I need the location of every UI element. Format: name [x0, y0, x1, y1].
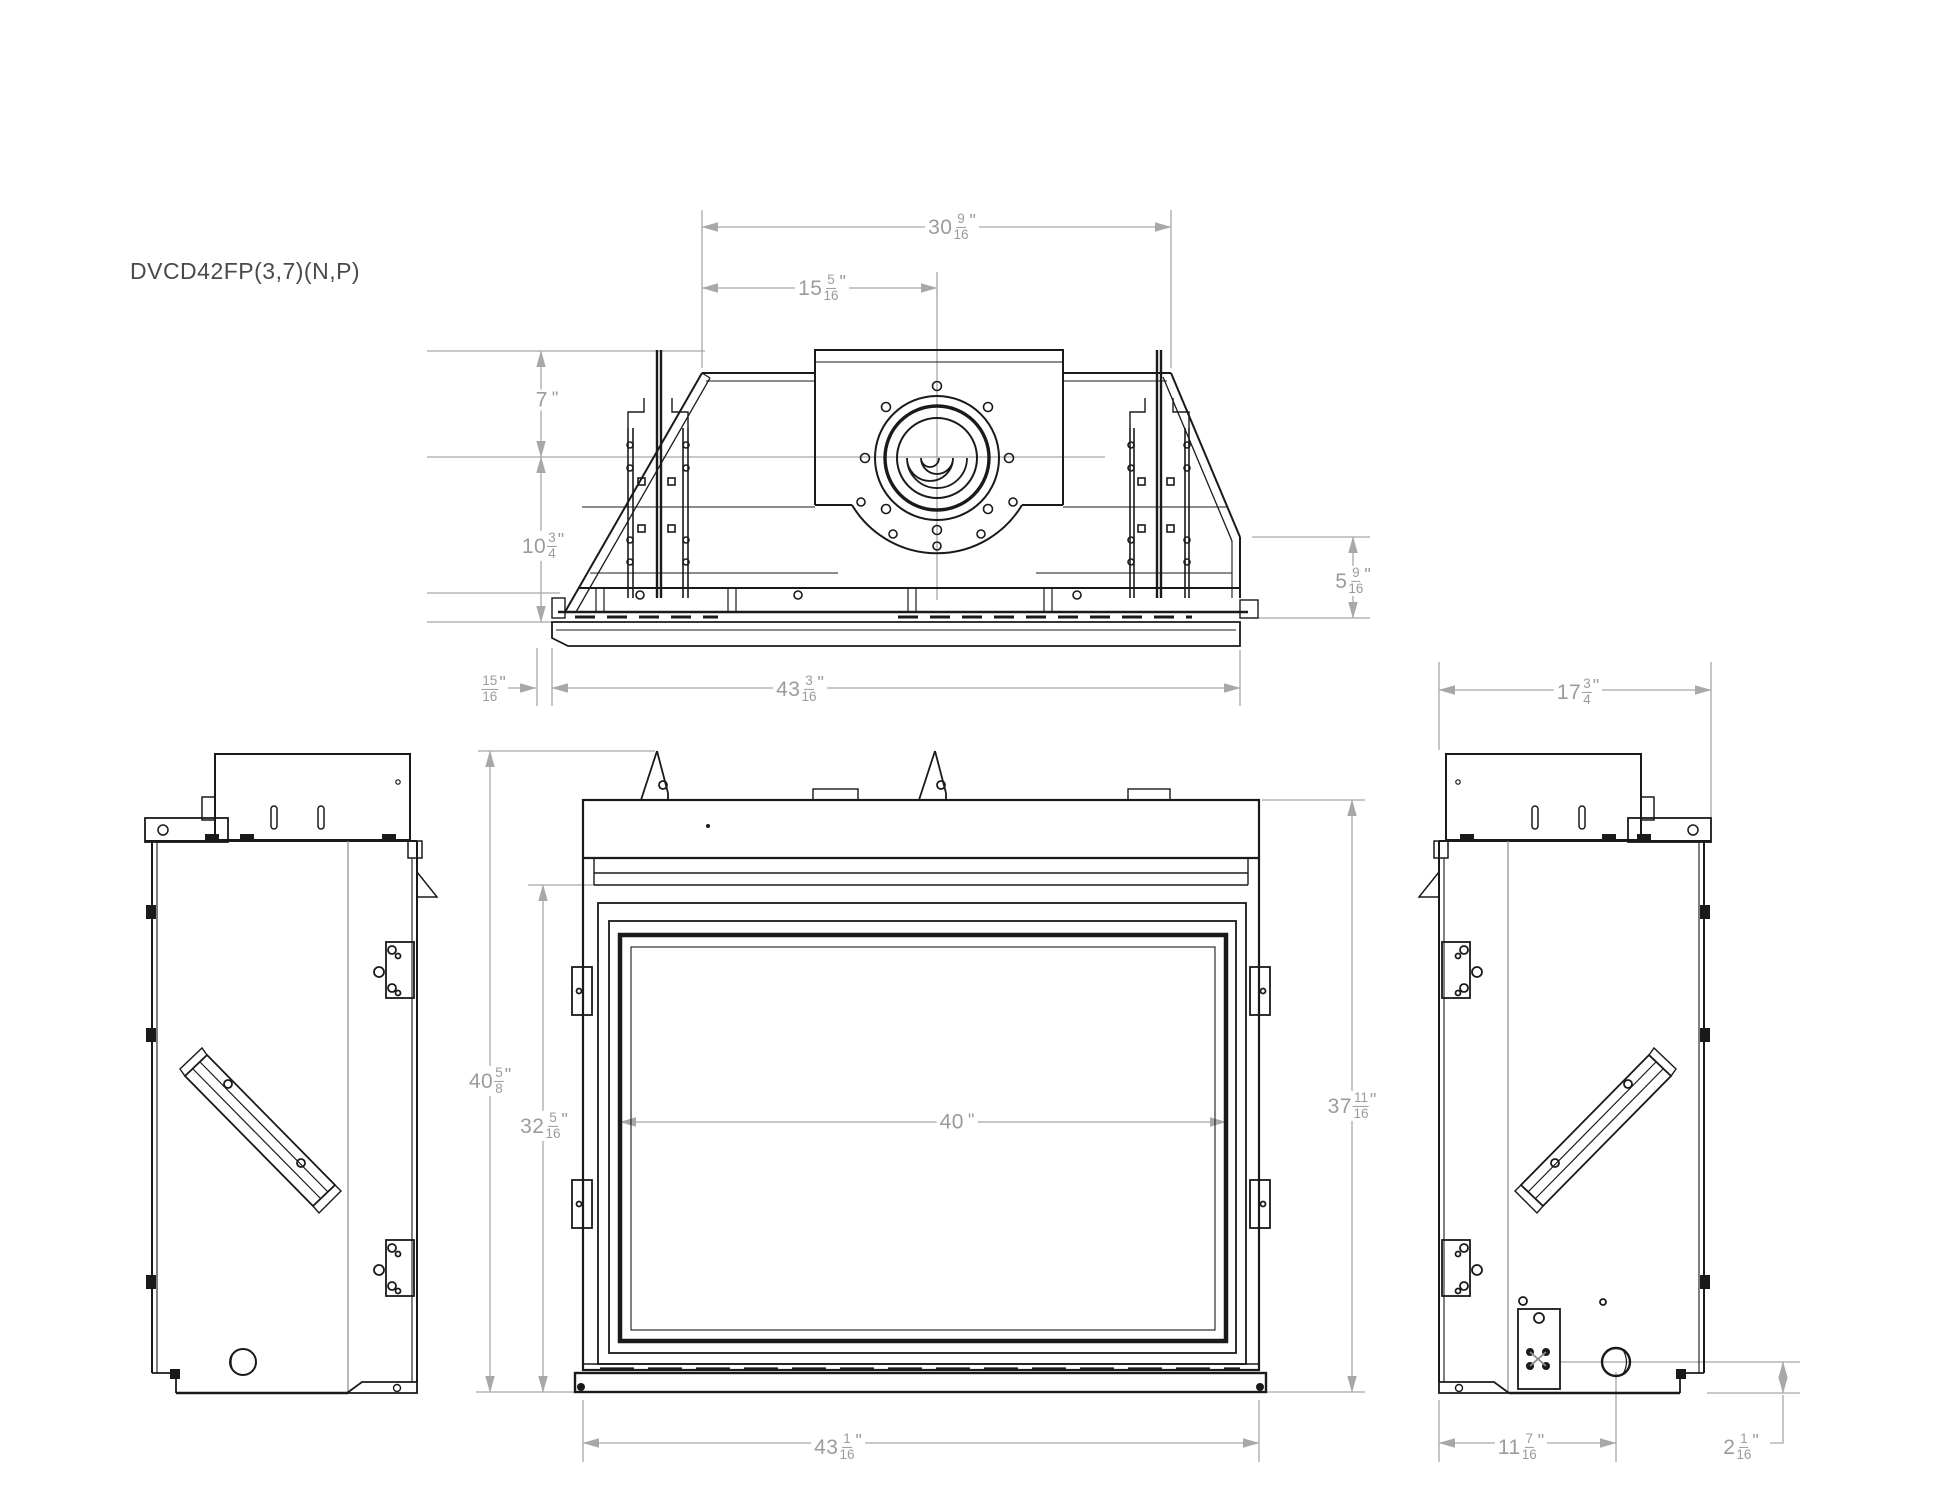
dim-top-back-width: 30916"	[925, 212, 979, 242]
dim-top-front-width: 43316"	[773, 674, 827, 704]
slot	[271, 806, 277, 829]
top-tab	[1128, 789, 1170, 800]
vent-shroud	[815, 350, 1063, 505]
right-bevel-panel	[1163, 373, 1258, 618]
standoff-box	[215, 754, 410, 840]
top-view	[552, 350, 1258, 646]
header-louver	[583, 824, 1259, 885]
dim-opening-height: 32516"	[517, 1111, 571, 1141]
rear-bracket-upper	[1442, 942, 1482, 998]
gas-access-hole	[230, 1349, 256, 1375]
base-plate	[552, 622, 1240, 646]
slot	[1532, 806, 1538, 829]
right-mounting-rails	[1128, 350, 1190, 598]
dim-glass-width: 40"	[937, 1112, 978, 1133]
bottom-grille	[575, 1364, 1266, 1392]
slot	[318, 806, 324, 829]
rear-bracket-upper	[374, 942, 414, 998]
dim-front-lip: 1516"	[477, 674, 508, 704]
standoff-box	[1446, 754, 1641, 840]
dim-flue-offset: 15516"	[795, 273, 849, 303]
dim-front-width: 43116"	[811, 1432, 865, 1462]
dim-total-height: 4058"	[466, 1066, 514, 1096]
slot	[1579, 806, 1585, 829]
dim-right-step: 5916"	[1332, 566, 1374, 596]
rear-spacer	[417, 872, 437, 897]
dim-gas-hole-height: 2116"	[1720, 1432, 1762, 1462]
dim-gas-hole-from-back: 11716"	[1495, 1432, 1547, 1462]
side-nailing-tabs	[572, 967, 1270, 1228]
rear-spacer	[1419, 872, 1439, 897]
top-tab	[813, 789, 858, 800]
front-view	[572, 751, 1270, 1392]
gas-valve-bracket	[1518, 1297, 1606, 1389]
dim-flue-to-front: 1034"	[519, 531, 567, 561]
rear-bracket-lower	[374, 1240, 414, 1296]
diagonal-brace	[180, 1048, 341, 1213]
rear-bracket-lower	[1442, 1240, 1482, 1296]
dimension-lines	[427, 210, 1800, 1462]
drawing-sheet: DVCD42FP(3,7)(N,P) 30916" 15516" 7" 1034…	[0, 0, 1946, 1504]
right-side-view	[1419, 754, 1711, 1393]
model-number-label: DVCD42FP(3,7)(N,P)	[130, 258, 360, 285]
left-mounting-rails	[627, 350, 689, 598]
hanger-bracket-right	[919, 751, 946, 800]
hanger-bracket-left	[641, 751, 668, 800]
dim-side-depth: 1734"	[1554, 677, 1602, 707]
dim-flue-to-back: 7"	[533, 390, 562, 411]
diagonal-brace	[1515, 1048, 1676, 1213]
left-side-view	[145, 754, 437, 1393]
dim-body-height: 371116"	[1325, 1091, 1380, 1121]
glass-frame	[598, 903, 1246, 1364]
